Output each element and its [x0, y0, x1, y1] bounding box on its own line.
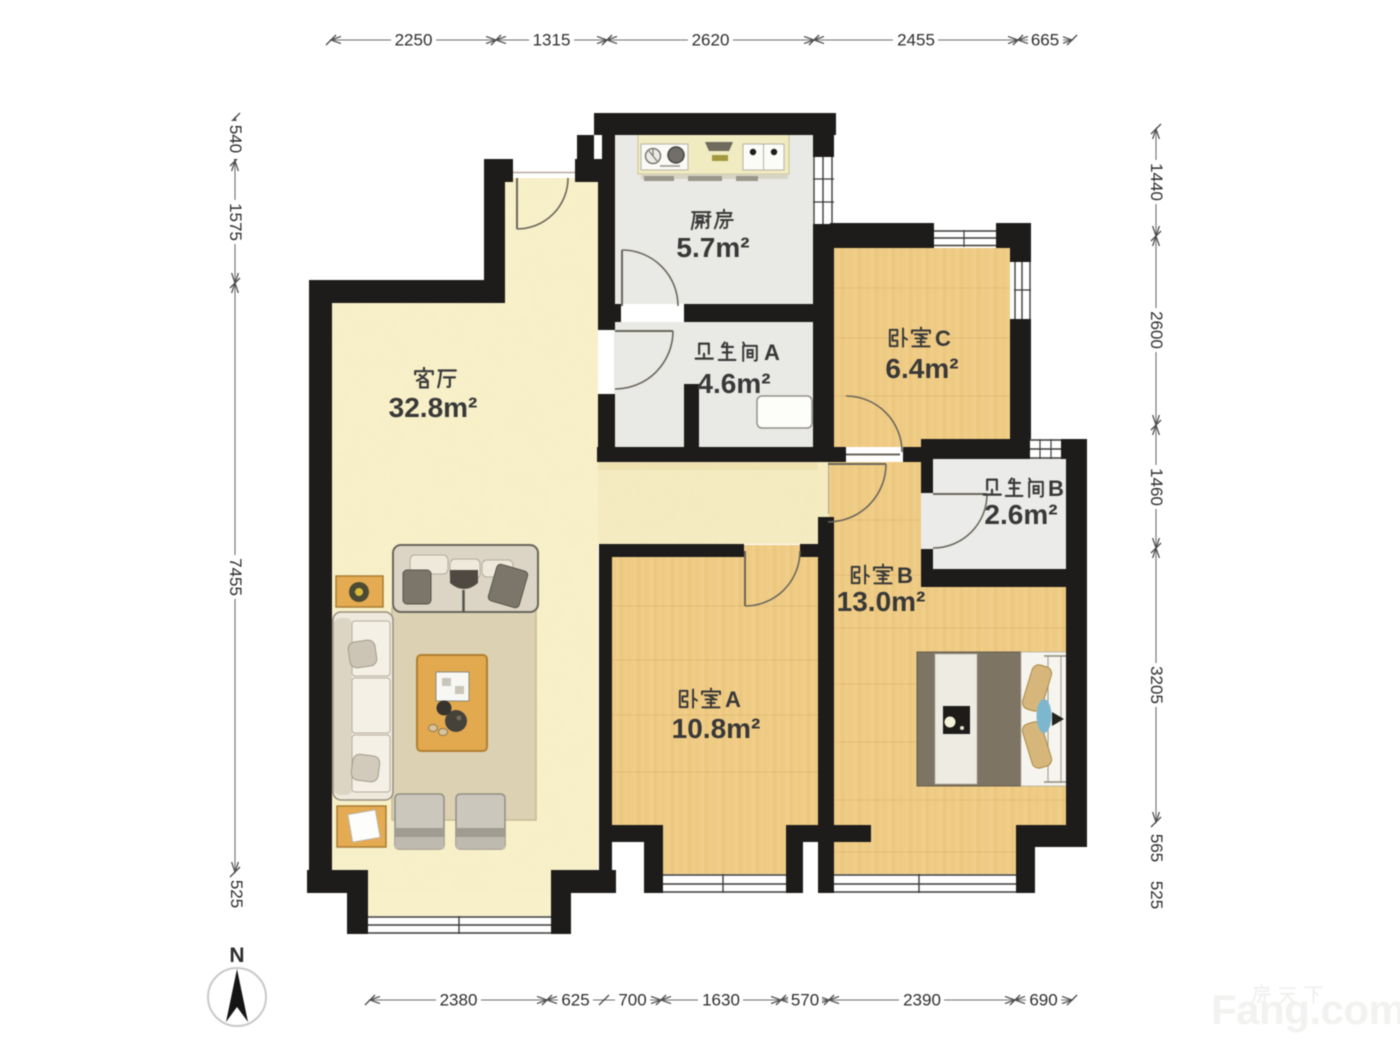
- svg-text:B: B: [897, 563, 913, 588]
- svg-text:A: A: [764, 340, 780, 365]
- svg-text:625: 625: [561, 991, 589, 1010]
- svg-text:3205: 3205: [1147, 666, 1166, 704]
- svg-text:2455: 2455: [897, 31, 935, 50]
- svg-text:565: 565: [1147, 834, 1166, 862]
- svg-text:2620: 2620: [692, 31, 730, 50]
- svg-text:525: 525: [1147, 881, 1166, 909]
- svg-text:N: N: [229, 944, 244, 967]
- svg-text:1315: 1315: [533, 31, 571, 50]
- svg-text:525: 525: [227, 880, 246, 908]
- svg-text:2600: 2600: [1147, 311, 1166, 349]
- svg-text:A: A: [725, 687, 741, 712]
- svg-text:5.7m²: 5.7m²: [676, 232, 749, 263]
- svg-text:10.8m²: 10.8m²: [672, 713, 761, 744]
- svg-text:540: 540: [226, 125, 245, 153]
- svg-text:2250: 2250: [395, 31, 433, 50]
- svg-text:1630: 1630: [702, 991, 740, 1010]
- svg-text:2.6m²: 2.6m²: [984, 499, 1057, 530]
- svg-text:665: 665: [1031, 31, 1059, 50]
- svg-text:2380: 2380: [440, 991, 478, 1010]
- svg-text:6.4m²: 6.4m²: [885, 353, 958, 384]
- svg-text:7455: 7455: [226, 558, 245, 596]
- svg-text:2390: 2390: [903, 991, 941, 1010]
- svg-text:1575: 1575: [226, 203, 245, 241]
- svg-text:C: C: [935, 326, 951, 351]
- svg-text:13.0m²: 13.0m²: [837, 586, 926, 617]
- svg-text:32.8m²: 32.8m²: [389, 392, 478, 423]
- svg-text:4.6m²: 4.6m²: [697, 368, 770, 399]
- svg-text:700: 700: [618, 991, 646, 1010]
- svg-text:1440: 1440: [1147, 163, 1166, 201]
- svg-text:690: 690: [1029, 991, 1057, 1010]
- svg-text:B: B: [1048, 476, 1064, 501]
- svg-text:Fang.com: Fang.com: [1211, 986, 1400, 1033]
- svg-text:1460: 1460: [1147, 468, 1166, 506]
- svg-text:570: 570: [791, 991, 819, 1010]
